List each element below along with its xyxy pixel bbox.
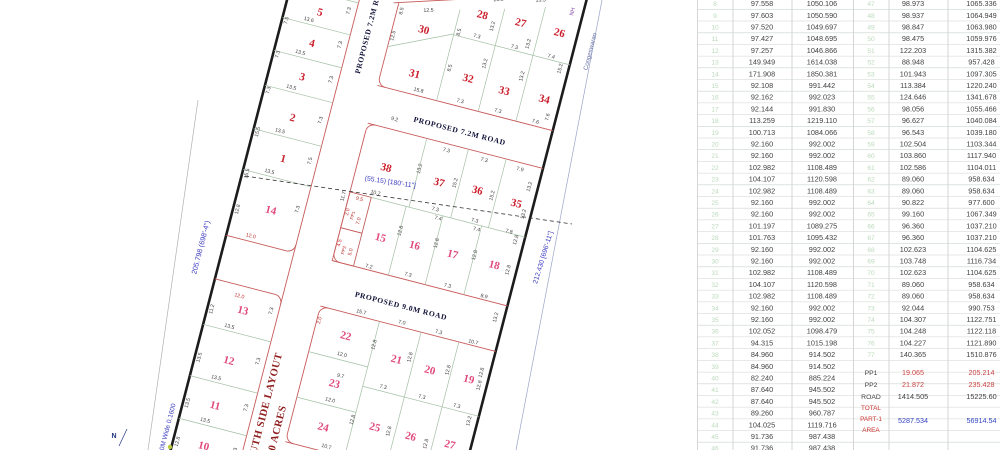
svg-text:914.502: 914.502 [809, 362, 835, 371]
svg-text:12.8: 12.8 [234, 204, 242, 215]
svg-text:PROPOSED 7.2M ROAD: PROPOSED 7.2M ROAD [353, 0, 385, 75]
svg-text:205.798 (698'-4"): 205.798 (698'-4") [189, 220, 212, 276]
svg-text:24: 24 [316, 420, 330, 434]
svg-text:12: 12 [711, 48, 719, 55]
svg-text:20: 20 [423, 363, 437, 377]
svg-text:7.3: 7.3 [337, 40, 345, 49]
svg-text:98.056: 98.056 [902, 104, 924, 113]
svg-text:13.5: 13.5 [493, 0, 503, 3]
svg-text:12.8: 12.8 [512, 234, 520, 245]
svg-text:7.3: 7.3 [494, 108, 503, 116]
svg-text:992.002: 992.002 [809, 140, 835, 149]
svg-text:34: 34 [537, 92, 551, 106]
svg-text:1121.890: 1121.890 [967, 338, 997, 347]
svg-text:15.8: 15.8 [413, 87, 424, 95]
svg-text:7.5: 7.5 [307, 157, 315, 166]
svg-text:12.0: 12.0 [234, 292, 245, 300]
svg-text:98.973: 98.973 [902, 0, 924, 8]
svg-text:87.640: 87.640 [751, 385, 773, 394]
svg-text:96.627: 96.627 [902, 116, 924, 125]
svg-text:73: 73 [867, 305, 875, 312]
svg-text:7.3: 7.3 [274, 50, 282, 59]
svg-text:12.8: 12.8 [444, 364, 452, 375]
svg-text:12.8: 12.8 [349, 414, 357, 425]
svg-text:235.428: 235.428 [969, 380, 995, 389]
svg-text:17: 17 [711, 106, 719, 113]
svg-text:35: 35 [711, 317, 719, 324]
svg-text:67: 67 [867, 235, 875, 242]
svg-text:7.3: 7.3 [345, 7, 353, 16]
svg-text:104.025: 104.025 [749, 420, 775, 429]
svg-text:124.646: 124.646 [900, 93, 926, 102]
svg-text:15.5: 15.5 [243, 168, 251, 179]
svg-text:97.520: 97.520 [751, 23, 773, 32]
svg-text:992.002: 992.002 [809, 245, 835, 254]
svg-text:11: 11 [209, 399, 222, 413]
svg-text:1103.344: 1103.344 [967, 140, 997, 149]
svg-text:1040.084: 1040.084 [966, 116, 996, 125]
svg-text:89.260: 89.260 [751, 409, 773, 418]
svg-text:36: 36 [470, 184, 484, 198]
svg-text:15: 15 [711, 83, 719, 90]
svg-text:30: 30 [711, 259, 719, 266]
svg-text:89.060: 89.060 [902, 280, 924, 289]
svg-text:987.438: 987.438 [809, 444, 835, 450]
svg-text:957.428: 957.428 [968, 58, 994, 67]
svg-text:7.9: 7.9 [516, 166, 525, 174]
svg-text:27: 27 [443, 438, 457, 450]
svg-text:7.3: 7.3 [294, 205, 302, 214]
svg-text:51: 51 [867, 48, 875, 55]
svg-text:7.5: 7.5 [283, 16, 291, 25]
svg-text:987.438: 987.438 [809, 432, 835, 441]
svg-text:7.3: 7.3 [452, 403, 461, 411]
svg-text:1065.336: 1065.336 [966, 0, 996, 8]
svg-text:27: 27 [711, 223, 719, 230]
svg-text:22: 22 [711, 165, 719, 172]
svg-text:104.307: 104.307 [900, 315, 926, 324]
svg-text:13.2: 13.2 [525, 38, 533, 49]
svg-text:12.0: 12.0 [245, 232, 256, 240]
svg-text:1048.695: 1048.695 [807, 34, 837, 43]
svg-text:1050.590: 1050.590 [807, 11, 837, 20]
svg-text:104.248: 104.248 [900, 327, 926, 336]
svg-text:1108.489: 1108.489 [807, 292, 837, 301]
svg-text:68: 68 [867, 247, 875, 254]
svg-text:992.002: 992.002 [809, 303, 835, 312]
svg-text:5.0: 5.0 [347, 248, 355, 257]
svg-text:212.430 [696'-11"]: 212.430 [696'-11"] [532, 230, 555, 284]
svg-text:205.214: 205.214 [969, 368, 995, 377]
svg-text:7.3: 7.3 [431, 206, 440, 214]
svg-text:31: 31 [711, 270, 719, 277]
svg-text:38: 38 [379, 161, 393, 175]
svg-text:28: 28 [476, 8, 490, 22]
svg-text:171.908: 171.908 [749, 69, 775, 78]
svg-text:1117.940: 1117.940 [967, 151, 996, 160]
svg-text:12: 12 [222, 354, 236, 368]
svg-text:104.107: 104.107 [749, 280, 775, 289]
svg-text:1116.734: 1116.734 [967, 257, 996, 266]
svg-text:1108.489: 1108.489 [807, 268, 837, 277]
svg-text:58: 58 [867, 130, 875, 137]
svg-text:91.736: 91.736 [751, 444, 773, 450]
svg-text:11.7: 11.7 [339, 191, 347, 202]
svg-text:1084.066: 1084.066 [807, 128, 837, 137]
svg-text:102.052: 102.052 [749, 327, 775, 336]
svg-text:1089.275: 1089.275 [807, 221, 837, 230]
svg-text:885.224: 885.224 [809, 374, 835, 383]
svg-text:1341.678: 1341.678 [966, 93, 996, 102]
svg-text:12.0: 12.0 [336, 351, 347, 359]
svg-text:92.160: 92.160 [751, 257, 773, 266]
svg-text:1104.625: 1104.625 [967, 245, 997, 254]
svg-text:140.365: 140.365 [900, 350, 926, 359]
svg-text:1614.038: 1614.038 [807, 58, 837, 67]
svg-text:12.5: 12.5 [423, 8, 433, 14]
svg-text:48: 48 [867, 13, 875, 20]
svg-text:59: 59 [867, 142, 875, 149]
svg-text:1063.980: 1063.980 [966, 23, 996, 32]
svg-text:PROPOSED 7.2M ROAD: PROPOSED 7.2M ROAD [413, 115, 507, 147]
svg-text:22: 22 [339, 329, 353, 343]
svg-text:102.982: 102.982 [749, 163, 775, 172]
svg-text:8: 8 [713, 1, 717, 8]
svg-text:15: 15 [374, 231, 388, 245]
svg-text:991.442: 991.442 [809, 81, 835, 90]
svg-text:41: 41 [711, 387, 719, 394]
svg-text:15225.60: 15225.60 [966, 392, 996, 401]
svg-text:7.3: 7.3 [434, 329, 443, 337]
svg-text:92.160: 92.160 [751, 303, 773, 312]
svg-text:89.060: 89.060 [902, 292, 924, 301]
svg-text:1120.598: 1120.598 [807, 280, 837, 289]
svg-text:3: 3 [298, 71, 307, 84]
svg-text:57: 57 [867, 118, 875, 125]
svg-text:18: 18 [487, 258, 501, 272]
svg-text:19: 19 [462, 372, 476, 386]
svg-text:13.2: 13.2 [481, 58, 489, 69]
svg-text:N: N [111, 433, 116, 440]
svg-text:122.203: 122.203 [900, 46, 926, 55]
svg-text:27: 27 [514, 16, 528, 30]
svg-text:992.002: 992.002 [809, 315, 835, 324]
svg-text:91.736: 91.736 [751, 432, 773, 441]
svg-text:1104.011: 1104.011 [967, 163, 996, 172]
svg-text:7.0: 7.0 [355, 217, 363, 226]
svg-text:77: 77 [867, 352, 875, 359]
svg-text:1850.381: 1850.381 [807, 69, 837, 78]
svg-text:21.872: 21.872 [902, 380, 924, 389]
svg-text:69: 69 [867, 259, 875, 266]
svg-text:92.160: 92.160 [751, 245, 773, 254]
svg-text:1046.866: 1046.866 [807, 46, 837, 55]
svg-text:56914.54: 56914.54 [967, 416, 997, 425]
svg-text:8.5: 8.5 [446, 64, 454, 73]
svg-text:34: 34 [711, 305, 719, 312]
svg-text:992.002: 992.002 [809, 210, 835, 219]
svg-text:7.3: 7.3 [480, 157, 489, 165]
svg-text:113.384: 113.384 [900, 81, 926, 90]
svg-text:100.713: 100.713 [749, 128, 775, 137]
svg-text:12.0: 12.0 [324, 396, 335, 404]
svg-text:98.847: 98.847 [902, 23, 924, 32]
svg-text:55: 55 [867, 95, 875, 102]
svg-text:89.060: 89.060 [902, 186, 924, 195]
svg-text:90.822: 90.822 [902, 198, 924, 207]
svg-text:20: 20 [711, 142, 719, 149]
svg-text:1108.489: 1108.489 [807, 163, 837, 172]
svg-text:7.4: 7.4 [434, 215, 443, 223]
svg-text:72: 72 [867, 294, 875, 301]
svg-text:1067.349: 1067.349 [966, 210, 996, 219]
svg-text:30: 30 [417, 23, 431, 37]
svg-text:74: 74 [867, 317, 875, 324]
svg-text:(55.15) [180'-11"]: (55.15) [180'-11"] [364, 175, 416, 189]
svg-text:19: 19 [711, 130, 719, 137]
svg-text:43: 43 [711, 411, 719, 418]
svg-text:54: 54 [867, 83, 875, 90]
svg-text:84.960: 84.960 [751, 350, 773, 359]
svg-text:92.160: 92.160 [751, 315, 773, 324]
svg-text:98.937: 98.937 [902, 11, 924, 20]
svg-text:62: 62 [867, 177, 875, 184]
svg-text:960.787: 960.787 [809, 409, 835, 418]
svg-text:92.044: 92.044 [902, 303, 924, 312]
svg-text:149.949: 149.949 [749, 58, 775, 67]
svg-text:12.8: 12.8 [174, 436, 182, 447]
svg-text:103.860: 103.860 [900, 151, 926, 160]
svg-text:992.002: 992.002 [809, 198, 835, 207]
svg-text:25: 25 [711, 200, 719, 207]
svg-text:13.2: 13.2 [416, 163, 424, 174]
svg-text:1049.697: 1049.697 [807, 23, 837, 32]
svg-text:84.960: 84.960 [751, 362, 773, 371]
svg-text:NH: NH [569, 7, 577, 16]
svg-text:13.5: 13.5 [196, 352, 204, 363]
svg-text:13: 13 [236, 304, 250, 318]
svg-text:92.160: 92.160 [751, 140, 773, 149]
svg-text:7.3: 7.3 [243, 404, 251, 413]
svg-text:47: 47 [867, 1, 875, 8]
svg-text:1414.505: 1414.505 [898, 392, 928, 401]
svg-text:45: 45 [711, 434, 719, 441]
svg-text:12.8: 12.8 [397, 225, 405, 236]
svg-text:1098.479: 1098.479 [807, 327, 837, 336]
svg-text:26: 26 [553, 26, 567, 40]
svg-text:92.162: 92.162 [751, 93, 773, 102]
svg-text:40: 40 [711, 376, 719, 383]
svg-text:7.3: 7.3 [456, 98, 465, 106]
svg-text:53: 53 [867, 71, 875, 78]
svg-text:1055.466: 1055.466 [966, 104, 996, 113]
svg-text:88.948: 88.948 [902, 58, 924, 67]
svg-text:104.227: 104.227 [900, 338, 926, 347]
svg-text:101.763: 101.763 [749, 233, 775, 242]
svg-text:990.753: 990.753 [968, 303, 994, 312]
svg-text:102.623: 102.623 [900, 245, 926, 254]
svg-text:7.3: 7.3 [317, 116, 325, 125]
svg-text:7.3: 7.3 [379, 384, 388, 392]
svg-text:31: 31 [408, 67, 422, 81]
svg-text:8.5: 8.5 [398, 7, 406, 16]
svg-text:104.107: 104.107 [749, 175, 775, 184]
svg-text:13.5: 13.5 [184, 397, 192, 408]
svg-text:65: 65 [867, 212, 875, 219]
svg-text:13.2: 13.2 [526, 181, 534, 192]
svg-text:32: 32 [461, 72, 475, 86]
svg-text:19.065: 19.065 [902, 368, 924, 377]
svg-text:7.3: 7.3 [328, 75, 336, 84]
svg-text:7.3: 7.3 [265, 86, 273, 95]
svg-text:49: 49 [867, 25, 875, 32]
svg-text:32: 32 [711, 282, 719, 289]
svg-text:97.257: 97.257 [751, 46, 773, 55]
svg-text:82.240: 82.240 [751, 374, 773, 383]
svg-text:76: 76 [867, 340, 875, 347]
svg-text:10: 10 [711, 25, 719, 32]
svg-text:1122.118: 1122.118 [967, 327, 996, 336]
svg-text:26: 26 [404, 430, 418, 444]
svg-text:10.7: 10.7 [370, 189, 381, 197]
svg-text:9.5: 9.5 [355, 196, 364, 204]
svg-text:PROPOSED 9.0M ROAD: PROPOSED 9.0M ROAD [354, 290, 448, 322]
svg-text:96.360: 96.360 [902, 233, 924, 242]
svg-text:4: 4 [308, 37, 317, 50]
svg-text:66: 66 [867, 223, 875, 230]
svg-text:113.259: 113.259 [749, 116, 775, 125]
svg-text:7.3: 7.3 [443, 282, 452, 290]
svg-text:25: 25 [368, 420, 382, 434]
svg-text:5: 5 [316, 6, 325, 19]
svg-text:7.8: 7.8 [505, 228, 514, 236]
svg-text:15.5: 15.5 [254, 126, 262, 137]
svg-text:12.5: 12.5 [389, 30, 397, 41]
svg-text:13.2: 13.2 [520, 208, 528, 219]
svg-text:12.8: 12.8 [385, 426, 393, 437]
svg-text:92.160: 92.160 [751, 198, 773, 207]
svg-text:97.427: 97.427 [751, 34, 773, 43]
svg-text:50: 50 [867, 36, 875, 43]
svg-text:1219.110: 1219.110 [807, 116, 837, 125]
svg-text:102.623: 102.623 [900, 268, 926, 277]
svg-text:1122.751: 1122.751 [967, 315, 997, 324]
svg-text:102.586: 102.586 [900, 163, 926, 172]
svg-text:98.475: 98.475 [902, 34, 924, 43]
svg-text:7.4: 7.4 [472, 226, 481, 234]
svg-text:33: 33 [711, 294, 719, 301]
svg-text:1037.210: 1037.210 [966, 221, 996, 230]
svg-text:61: 61 [867, 165, 875, 172]
svg-text:958.634: 958.634 [968, 175, 994, 184]
svg-text:2.0: 2.0 [316, 316, 324, 325]
svg-text:13.2: 13.2 [492, 312, 500, 323]
svg-text:102.982: 102.982 [749, 292, 775, 301]
svg-text:16: 16 [711, 95, 719, 102]
svg-text:14: 14 [264, 203, 278, 217]
svg-text:7.6: 7.6 [544, 113, 552, 122]
svg-text:33: 33 [497, 84, 511, 98]
svg-text:7.6: 7.6 [531, 118, 540, 126]
svg-text:96.360: 96.360 [902, 221, 924, 230]
svg-text:10.7: 10.7 [468, 338, 479, 346]
svg-text:102.504: 102.504 [900, 140, 926, 149]
svg-text:12.8: 12.8 [433, 238, 441, 249]
svg-text:1119.716: 1119.716 [807, 420, 836, 429]
svg-text:87.640: 87.640 [751, 397, 773, 406]
svg-text:1: 1 [279, 153, 287, 166]
svg-text:37: 37 [432, 176, 446, 190]
svg-text:94.315: 94.315 [751, 338, 773, 347]
svg-text:1095.432: 1095.432 [807, 233, 837, 242]
svg-text:24: 24 [711, 188, 719, 195]
svg-text:56: 56 [867, 106, 875, 113]
svg-text:977.600: 977.600 [968, 198, 994, 207]
svg-text:992.023: 992.023 [809, 93, 835, 102]
svg-text:9: 9 [713, 13, 717, 20]
svg-text:13.2: 13.2 [465, 415, 473, 426]
svg-text:17: 17 [446, 247, 460, 261]
svg-text:10: 10 [197, 439, 211, 450]
svg-text:92.160: 92.160 [751, 151, 773, 160]
svg-text:Congeswaran: Congeswaran [582, 32, 598, 71]
svg-text:12.8: 12.8 [370, 339, 378, 350]
svg-text:46: 46 [711, 446, 719, 450]
svg-text:21: 21 [390, 353, 404, 367]
svg-text:60: 60 [867, 153, 875, 160]
svg-text:101.197: 101.197 [749, 221, 775, 230]
svg-text:5287.534: 5287.534 [898, 416, 928, 425]
svg-text:7.3: 7.3 [418, 394, 427, 402]
svg-text:92.160: 92.160 [751, 210, 773, 219]
svg-text:1037.210: 1037.210 [966, 233, 996, 242]
svg-text:7.3: 7.3 [404, 271, 413, 279]
svg-text:13.3: 13.3 [535, 0, 545, 4]
svg-text:1108.489: 1108.489 [807, 186, 837, 195]
svg-text:28: 28 [711, 235, 719, 242]
svg-text:1510.876: 1510.876 [966, 350, 996, 359]
svg-text:92.144: 92.144 [751, 104, 773, 113]
svg-text:1064.949: 1064.949 [966, 11, 996, 20]
svg-text:75: 75 [867, 329, 875, 336]
svg-text:103.748: 103.748 [900, 257, 926, 266]
svg-text:97.558: 97.558 [751, 0, 773, 8]
svg-text:102.982: 102.982 [749, 186, 775, 195]
svg-text:PP2: PP2 [865, 382, 878, 389]
svg-text:42: 42 [711, 399, 719, 406]
svg-text:914.502: 914.502 [809, 350, 835, 359]
svg-text:12.8: 12.8 [504, 264, 512, 275]
svg-text:7.0: 7.0 [398, 319, 407, 327]
svg-text:992.002: 992.002 [809, 151, 835, 160]
svg-text:23: 23 [711, 177, 719, 184]
svg-text:63: 63 [867, 188, 875, 195]
svg-text:36: 36 [711, 329, 719, 336]
svg-text:945.502: 945.502 [809, 385, 835, 394]
svg-text:26: 26 [711, 212, 719, 219]
svg-text:96.543: 96.543 [902, 128, 924, 137]
svg-text:101.943: 101.943 [900, 69, 926, 78]
svg-text:102.982: 102.982 [749, 268, 775, 277]
svg-text:TOTAL: TOTAL [861, 405, 881, 412]
svg-text:12.8: 12.8 [471, 249, 479, 260]
svg-text:7.3: 7.3 [255, 357, 263, 366]
svg-text:945.502: 945.502 [809, 397, 835, 406]
svg-text:1220.240: 1220.240 [966, 81, 996, 90]
svg-text:99.160: 99.160 [902, 210, 924, 219]
svg-text:92.108: 92.108 [751, 81, 773, 90]
svg-text:18: 18 [711, 118, 719, 125]
